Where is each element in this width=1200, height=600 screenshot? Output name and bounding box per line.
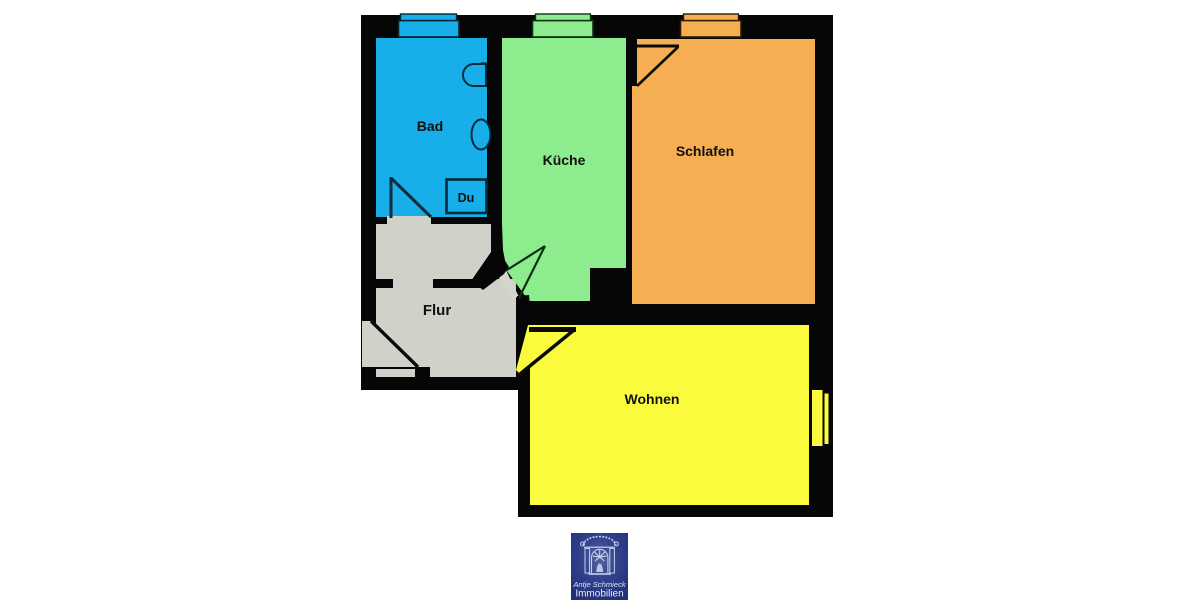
svg-text:Wohnen: Wohnen — [625, 391, 680, 407]
svg-text:Immobilien: Immobilien — [575, 589, 623, 600]
svg-text:Bad: Bad — [417, 118, 443, 134]
svg-text:Küche: Küche — [543, 152, 586, 168]
svg-text:Schlafen: Schlafen — [676, 143, 734, 159]
svg-text:Du: Du — [458, 191, 475, 205]
svg-text:Flur: Flur — [423, 302, 451, 319]
